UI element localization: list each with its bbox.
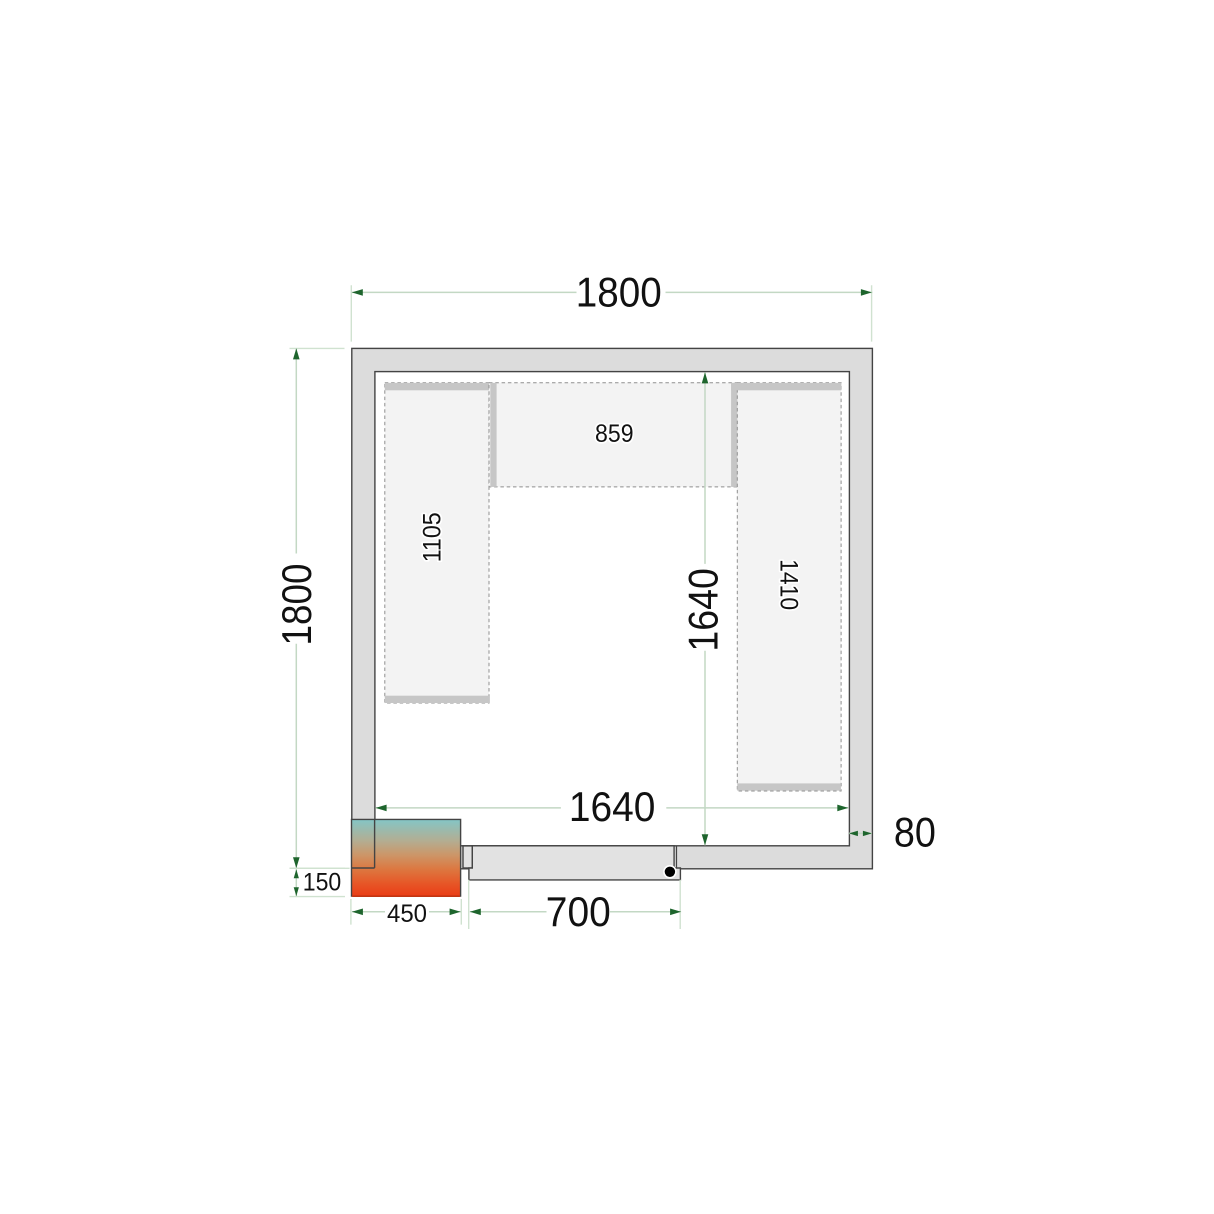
svg-text:1800: 1800 bbox=[576, 269, 662, 316]
svg-text:80: 80 bbox=[894, 809, 936, 856]
svg-text:1800: 1800 bbox=[273, 564, 320, 646]
svg-text:450: 450 bbox=[387, 900, 427, 928]
svg-text:859: 859 bbox=[595, 420, 634, 448]
svg-text:700: 700 bbox=[546, 888, 611, 935]
svg-text:1410: 1410 bbox=[775, 559, 803, 610]
svg-text:1640: 1640 bbox=[680, 568, 727, 652]
svg-text:1105: 1105 bbox=[418, 512, 446, 562]
svg-text:1640: 1640 bbox=[569, 783, 656, 830]
svg-text:150: 150 bbox=[303, 869, 342, 897]
